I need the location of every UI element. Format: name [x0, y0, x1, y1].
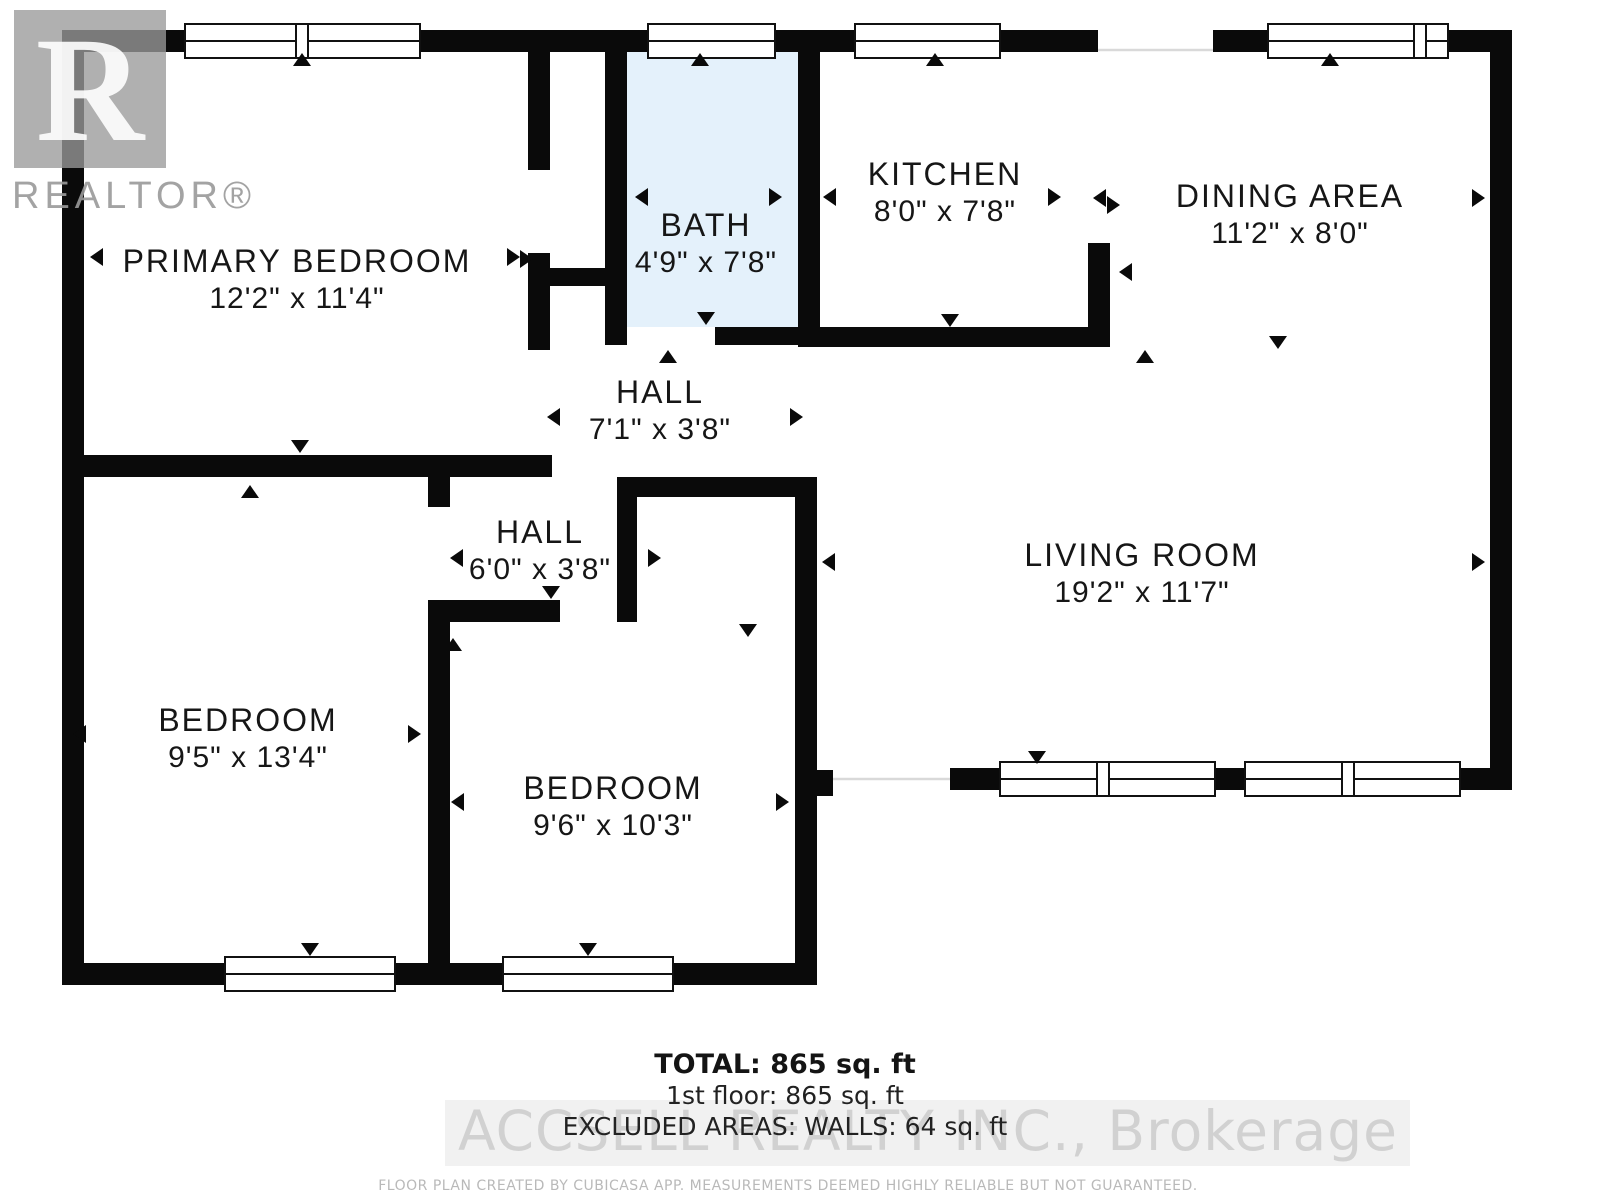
room-dims-bedroom-middle: 9'6" x 10'3"	[533, 809, 693, 842]
realtor-logo-letter: R	[36, 7, 146, 173]
windows	[185, 24, 1460, 991]
room-dims-primary-bedroom: 12'2" x 11'4"	[209, 282, 384, 315]
summary-excluded-areas: EXCLUDED AREAS: WALLS: 64 sq. ft	[563, 1112, 1008, 1141]
area-summary: TOTAL: 865 sq. ft 1st floor: 865 sq. ft …	[563, 1049, 1008, 1141]
wall-closet-left	[617, 477, 637, 622]
wall-bath-left	[605, 52, 627, 345]
floor-plan-svg: PRIMARY BEDROOM 12'2" x 11'4" BATH 4'9" …	[0, 0, 1600, 1200]
disclaimer-text: FLOOR PLAN CREATED BY CUBICASA APP. MEAS…	[378, 1178, 1198, 1194]
window-kitchen	[855, 24, 1000, 58]
room-label-hall-upper: HALL	[616, 374, 704, 410]
wall-primary-bottom	[62, 455, 552, 477]
summary-first-floor: 1st floor: 865 sq. ft	[666, 1081, 904, 1110]
wall-kitchen-bottom	[798, 327, 1110, 347]
wall-exterior-right	[1490, 30, 1512, 790]
wall-kitchen-dining-stub	[1088, 243, 1110, 329]
room-dims-bath: 4'9" x 7'8"	[635, 246, 777, 279]
room-label-bedroom-left: BEDROOM	[158, 702, 337, 738]
wall-bedroom-middle-right	[795, 477, 817, 985]
wall-exterior-left	[62, 30, 84, 985]
room-label-dining-area: DINING AREA	[1176, 178, 1404, 214]
room-labels: PRIMARY BEDROOM 12'2" x 11'4" BATH 4'9" …	[123, 156, 1405, 842]
bath-floor	[627, 52, 798, 327]
wall-bedroom-left-right-upper	[428, 477, 450, 507]
window-bedroom-left	[225, 957, 395, 991]
wall-bath-kitchen-divider	[798, 52, 820, 345]
window-bedroom-middle	[503, 957, 673, 991]
window-bath	[648, 24, 775, 58]
room-label-hall-lower: HALL	[496, 514, 584, 550]
room-dims-hall-upper: 7'1" x 3'8"	[589, 413, 731, 446]
room-dims-kitchen: 8'0" x 7'8"	[874, 195, 1016, 228]
room-dims-dining-area: 11'2" x 8'0"	[1211, 217, 1369, 250]
wall-hall-lower-bottom	[428, 600, 560, 622]
room-label-bath: BATH	[661, 207, 752, 243]
room-label-bedroom-middle: BEDROOM	[523, 770, 702, 806]
room-label-kitchen: KITCHEN	[868, 156, 1022, 192]
wall-primary-right-lower	[528, 253, 550, 350]
wall-bedroom-middle-nub	[817, 770, 833, 796]
realtor-logo-word: REALTOR®	[12, 175, 256, 217]
window-primary-bedroom	[185, 24, 420, 58]
wall-primary-closet-bar	[548, 268, 610, 286]
floor-plan-page: PRIMARY BEDROOM 12'2" x 11'4" BATH 4'9" …	[0, 0, 1600, 1200]
wall-closet-top	[617, 477, 817, 497]
room-dims-bedroom-left: 9'5" x 13'4"	[168, 741, 328, 774]
room-label-primary-bedroom: PRIMARY BEDROOM	[123, 243, 472, 279]
room-label-living-room: LIVING ROOM	[1024, 537, 1259, 573]
summary-total: TOTAL: 865 sq. ft	[654, 1049, 916, 1080]
wall-bedroom-left-right-lower	[428, 600, 450, 985]
openings	[833, 28, 1213, 779]
wall-primary-right-upper	[528, 52, 550, 170]
window-dining	[1268, 24, 1448, 58]
room-dims-hall-lower: 6'0" x 3'8"	[469, 553, 611, 586]
window-living-left	[1000, 762, 1215, 796]
room-dims-living-room: 19'2" x 11'7"	[1054, 576, 1229, 609]
window-living-right	[1245, 762, 1460, 796]
